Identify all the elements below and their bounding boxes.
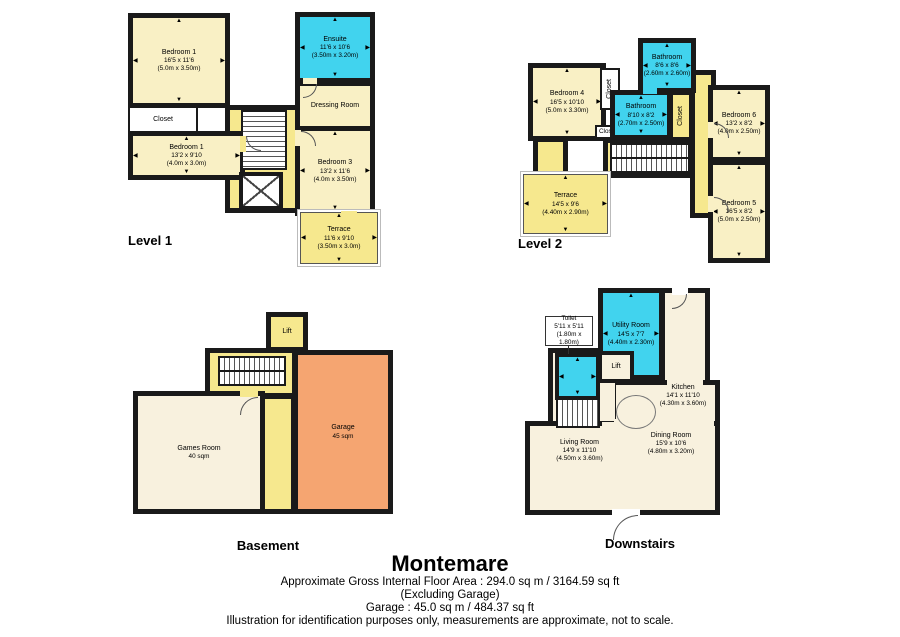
dimension-arrow: ▼ — [332, 205, 338, 211]
dimension-arrow: ▶ — [235, 153, 240, 159]
stair-divider — [218, 370, 286, 372]
dimension-arrow: ◀ — [615, 112, 620, 118]
dimension-arrow: ▲ — [564, 68, 570, 74]
dimension-arrow: ▶ — [591, 374, 596, 380]
room-garage: Garage 45 sqm — [293, 350, 393, 514]
dimension-arrow: ▶ — [365, 168, 370, 174]
room-metric: (4.0m x 3.50m) — [314, 176, 357, 184]
dimension-arrow: ▼ — [563, 227, 569, 233]
footer: Montemare Approximate Gross Internal Flo… — [0, 552, 900, 628]
room-name: Living Room — [532, 438, 627, 447]
room-dims: 15'9 x 10'6 — [625, 440, 717, 448]
dimension-arrow: ▼ — [736, 252, 742, 258]
room-dims: 16'5 x 11'6 — [164, 57, 194, 65]
room-dims: 14'5 x 7'7 — [618, 331, 645, 339]
dimension-arrow: ◀ — [524, 201, 529, 207]
room-lift: Lift — [266, 312, 308, 352]
dimension-arrow: ▼ — [664, 82, 670, 88]
room-dims: 16'5 x 10'10 — [550, 99, 584, 107]
room-name: Closet — [676, 106, 685, 126]
room-dims: 40 sqm — [189, 453, 210, 461]
dimension-arrow: ▼ — [332, 72, 338, 78]
dimension-arrow: ▲ — [563, 175, 569, 181]
dimension-arrow: ▲ — [332, 17, 338, 23]
dimension-arrow: ▲ — [628, 293, 634, 299]
room-terrace: Terrace 14'5 x 9'6 (4.40m x 2.90m) ▲▼◀▶ — [523, 174, 608, 234]
room-metric: (5.0m x 3.50m) — [158, 65, 201, 73]
dimension-arrow: ▶ — [372, 235, 377, 241]
room-name: Lift — [282, 327, 291, 336]
leader-line — [568, 346, 569, 354]
dimension-arrow: ▲ — [638, 95, 644, 101]
level2-label: Level 2 — [518, 236, 562, 251]
room-bathroom-top: Bathroom 8'6 x 8'6 (2.60m x 2.60m) ▲▼◀▶ — [638, 38, 696, 93]
floorplan-page: Bedroom 1 16'5 x 11'6 (5.0m x 3.50m) ▲▼◀… — [0, 0, 900, 637]
room-name: Bathroom — [652, 53, 682, 62]
dimension-arrow: ▲ — [176, 18, 182, 24]
room-closet: Closet — [128, 106, 198, 133]
room-dims: 11'6 x 9'10 — [324, 235, 354, 243]
room-dims: 14'1 x 11'10 — [648, 392, 718, 400]
room-name: Games Room — [177, 444, 220, 453]
room-bedroom-1-upper: Bedroom 1 16'5 x 11'6 (5.0m x 3.50m) ▲▼◀… — [128, 13, 230, 108]
excluding-garage-line: (Excluding Garage) — [0, 589, 900, 602]
dimension-arrow: ▼ — [638, 129, 644, 135]
room-toilet: ▲▼◀▶ — [555, 353, 600, 400]
room-name: Bedroom 1 — [169, 143, 203, 152]
dimension-arrow: ◀ — [300, 168, 305, 174]
dimension-arrow: ◀ — [533, 99, 538, 105]
dimension-arrow: ◀ — [643, 63, 648, 69]
room-dims: 13'2 x 9'10 — [171, 152, 202, 160]
room-metric: (4.40m x 2.90m) — [542, 209, 589, 217]
gross-area-line: Approximate Gross Internal Floor Area : … — [0, 576, 900, 589]
room-metric: (4.80m x 3.20m) — [625, 448, 717, 456]
room-dims: 14'5 x 9'6 — [552, 201, 579, 209]
dimension-arrow: ▼ — [336, 257, 342, 263]
dimension-arrow: ◀ — [559, 374, 564, 380]
room-metric: (4.30m x 3.60m) — [648, 400, 718, 408]
dimension-arrow: ◀ — [603, 331, 608, 337]
room-metric: (3.50m x 3.0m) — [318, 243, 361, 251]
room-metric: (3.50m x 3.20m) — [312, 52, 359, 60]
room-metric: (5.0m x 2.50m) — [718, 216, 761, 224]
door-opening — [341, 211, 357, 217]
room-name: Garage — [331, 423, 354, 432]
room-metric: (5.0m x 3.30m) — [546, 107, 589, 115]
dimension-arrow: ▶ — [760, 209, 765, 215]
dimension-arrow: ▲ — [184, 136, 190, 142]
room-closet-mid: Closet — [670, 92, 692, 140]
dimension-arrow: ▼ — [575, 390, 581, 396]
room-name: Closet — [153, 115, 173, 124]
room-name: Dressing Room — [311, 101, 359, 110]
dimension-arrow: ◀ — [300, 45, 305, 51]
garage-area-line: Garage : 45.0 sq m / 484.37 sq ft — [0, 602, 900, 615]
toilet-label-box: Toilet 5'11 x 5'11 (1.80m x 1.80m) — [545, 316, 593, 346]
kitchen-label: Kitchen 14'1 x 11'10 (4.30m x 3.60m) — [648, 383, 718, 408]
room-name: Bedroom 6 — [722, 111, 756, 120]
property-title: Montemare — [0, 552, 900, 576]
living-room-label: Living Room 14'9 x 11'10 (4.50m x 3.60m) — [532, 438, 627, 463]
room-dims: 13'2 x 11'6 — [320, 168, 350, 176]
room-dims: 11'6 x 10'6 — [320, 44, 350, 52]
plan-level2: Bedroom 4 16'5 x 10'10 (5.0m x 3.30m) ▲▼… — [515, 30, 777, 278]
stair-divider — [610, 157, 690, 159]
room-dims: 14'9 x 11'10 — [532, 447, 627, 455]
lift-shaft-void — [239, 172, 283, 210]
room-metric: (4.50m x 3.60m) — [532, 455, 627, 463]
dimension-arrow: ▲ — [736, 165, 742, 171]
dimension-arrow: ▶ — [365, 45, 370, 51]
room-dims: 5'11 x 5'11 — [554, 323, 584, 331]
room-metric: (4.0m x 3.0m) — [167, 160, 206, 168]
dimension-arrow: ▲ — [664, 43, 670, 49]
dimension-arrow: ◀ — [301, 235, 306, 241]
room-metric: (2.60m x 2.60m) — [644, 70, 691, 78]
room-dims: 8'10 x 8'2 — [628, 112, 655, 120]
room-name: Bathroom — [626, 102, 656, 111]
room-bedroom-1-lower: Bedroom 1 13'2 x 9'10 (4.0m x 3.0m) ▲▼◀▶ — [128, 131, 245, 180]
entry-corridor — [660, 288, 710, 385]
dimension-arrow: ▶ — [760, 121, 765, 127]
room-metric: (1.80m x 1.80m) — [546, 331, 592, 347]
room-name: Terrace — [554, 191, 577, 200]
room-name: Terrace — [327, 225, 350, 234]
level1-label: Level 1 — [128, 233, 172, 248]
room-ensuite: Ensuite 11'6 x 10'6 (3.50m x 3.20m) ▲▼◀▶ — [295, 12, 375, 83]
dimension-arrow: ▶ — [662, 112, 667, 118]
dimension-arrow: ▶ — [686, 63, 691, 69]
dimension-arrow: ▶ — [220, 58, 225, 64]
dimension-arrow: ▼ — [176, 97, 182, 103]
door-opening — [643, 88, 657, 94]
room-name: Bedroom 1 — [162, 48, 196, 57]
room-metric: (4.40m x 2.30m) — [608, 339, 655, 347]
landing — [533, 137, 568, 177]
disclaimer-line: Illustration for identification purposes… — [0, 615, 900, 628]
room-name: Utility Room — [612, 321, 650, 330]
room-dims: 16'5 x 8'2 — [726, 208, 753, 216]
room-name: Toilet — [562, 315, 577, 323]
room-name: Lift — [611, 362, 620, 371]
dimension-arrow: ▲ — [575, 357, 581, 363]
plan-basement: Garage 45 sqm Lift Games Room 40 sqm Bas… — [128, 308, 398, 560]
dimension-arrow: ▼ — [736, 151, 742, 157]
room-dims: 45 sqm — [333, 433, 354, 441]
door-opening — [240, 136, 246, 152]
basement-label: Basement — [208, 538, 328, 553]
dimension-arrow: ▼ — [564, 130, 570, 136]
plan-level1: Bedroom 1 16'5 x 11'6 (5.0m x 3.50m) ▲▼◀… — [125, 8, 385, 260]
dimension-arrow: ▶ — [654, 331, 659, 337]
dining-room-label: Dining Room 15'9 x 10'6 (4.80m x 3.20m) — [625, 431, 717, 456]
plan-downstairs: Utility Room 14'5 x 7'7 (4.40m x 2.30m) … — [520, 283, 760, 558]
room-dims: 8'6 x 8'6 — [655, 62, 678, 70]
dimension-arrow: ▲ — [736, 90, 742, 96]
room-name: Bedroom 4 — [550, 89, 584, 98]
dimension-arrow: ▼ — [184, 169, 190, 175]
room-name: Dining Room — [625, 431, 717, 440]
dimension-arrow: ◀ — [133, 58, 138, 64]
dimension-arrow: ▶ — [602, 201, 607, 207]
room-lift: Lift — [598, 351, 634, 383]
room-terrace: Terrace 11'6 x 9'10 (3.50m x 3.0m) ▲▼◀▶ — [300, 212, 378, 264]
room-bathroom-mid: Bathroom 8'10 x 8'2 (2.70m x 2.50m) ▲▼◀▶ — [610, 90, 672, 140]
staircase — [556, 398, 600, 428]
downstairs-label: Downstairs — [565, 536, 715, 551]
room-name: Kitchen — [648, 383, 718, 392]
room-metric: (2.70m x 2.50m) — [618, 120, 665, 128]
room-name: Bedroom 3 — [318, 158, 352, 167]
dimension-arrow: ▲ — [332, 131, 338, 137]
dimension-arrow: ◀ — [133, 153, 138, 159]
room-dims: 13'2 x 8'2 — [726, 120, 753, 128]
room-name: Ensuite — [323, 35, 346, 44]
